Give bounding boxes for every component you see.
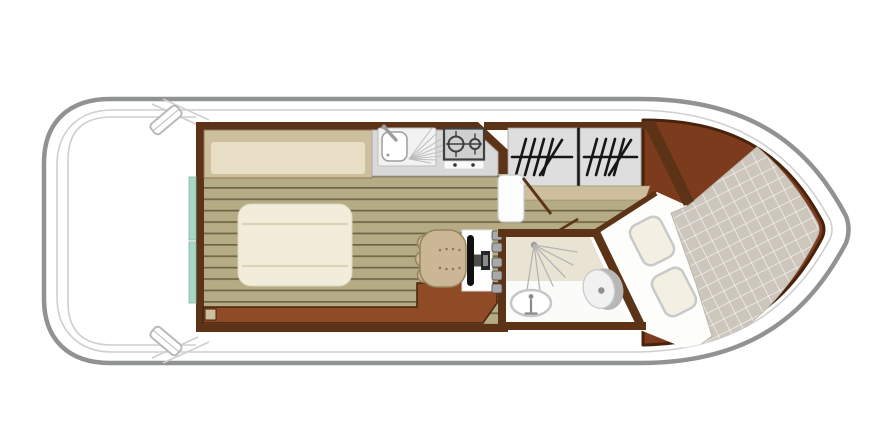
cabinet-hatch bbox=[205, 309, 216, 320]
helm-console bbox=[492, 231, 502, 293]
saloon bbox=[189, 122, 508, 332]
stove-icon bbox=[444, 129, 484, 170]
boat-floor-plan bbox=[0, 0, 890, 446]
helm-chair bbox=[416, 230, 467, 287]
bathroom-top-wall bbox=[498, 229, 597, 237]
bathroom-bottom-wall bbox=[498, 322, 646, 330]
galley bbox=[372, 125, 498, 177]
floor-plan-canvas bbox=[0, 0, 890, 446]
bunk-shelf bbox=[506, 186, 650, 200]
helm-station bbox=[416, 230, 503, 293]
cabin-door bbox=[498, 175, 524, 222]
washbasin-icon bbox=[511, 290, 551, 316]
dinette-table bbox=[238, 204, 352, 286]
settee bbox=[204, 130, 372, 178]
sliding-door bbox=[189, 177, 196, 303]
sink-drain bbox=[387, 154, 390, 157]
stove-knob-strip bbox=[444, 161, 484, 169]
